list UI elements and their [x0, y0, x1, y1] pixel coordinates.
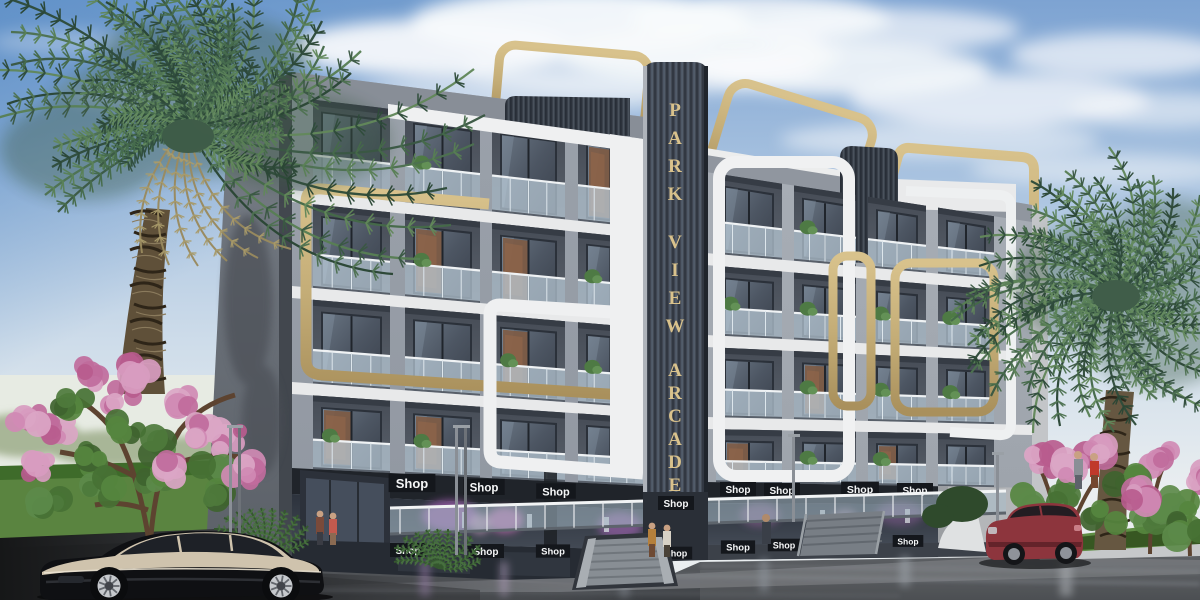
svg-text:Shop: Shop [897, 536, 918, 546]
svg-text:Shop: Shop [396, 476, 429, 491]
svg-text:R: R [668, 156, 682, 177]
svg-text:I: I [671, 260, 678, 281]
svg-text:Shop: Shop [726, 543, 750, 554]
svg-text:C: C [668, 406, 682, 427]
svg-text:E: E [669, 288, 682, 309]
svg-text:Shop: Shop [541, 547, 565, 558]
svg-text:Shop: Shop [470, 483, 499, 495]
svg-text:A: A [668, 360, 682, 381]
svg-text:A: A [668, 429, 682, 450]
svg-text:D: D [668, 452, 682, 473]
svg-text:R: R [668, 383, 682, 404]
svg-text:W: W [666, 316, 685, 337]
svg-text:Shop: Shop [542, 486, 570, 498]
svg-text:A: A [668, 128, 682, 149]
svg-text:Shop: Shop [664, 499, 689, 510]
svg-text:Shop: Shop [770, 486, 795, 497]
svg-text:Shop: Shop [726, 485, 751, 496]
svg-text:V: V [668, 232, 682, 253]
svg-text:P: P [669, 100, 681, 121]
svg-text:Shop: Shop [773, 541, 796, 551]
svg-text:K: K [668, 184, 683, 205]
